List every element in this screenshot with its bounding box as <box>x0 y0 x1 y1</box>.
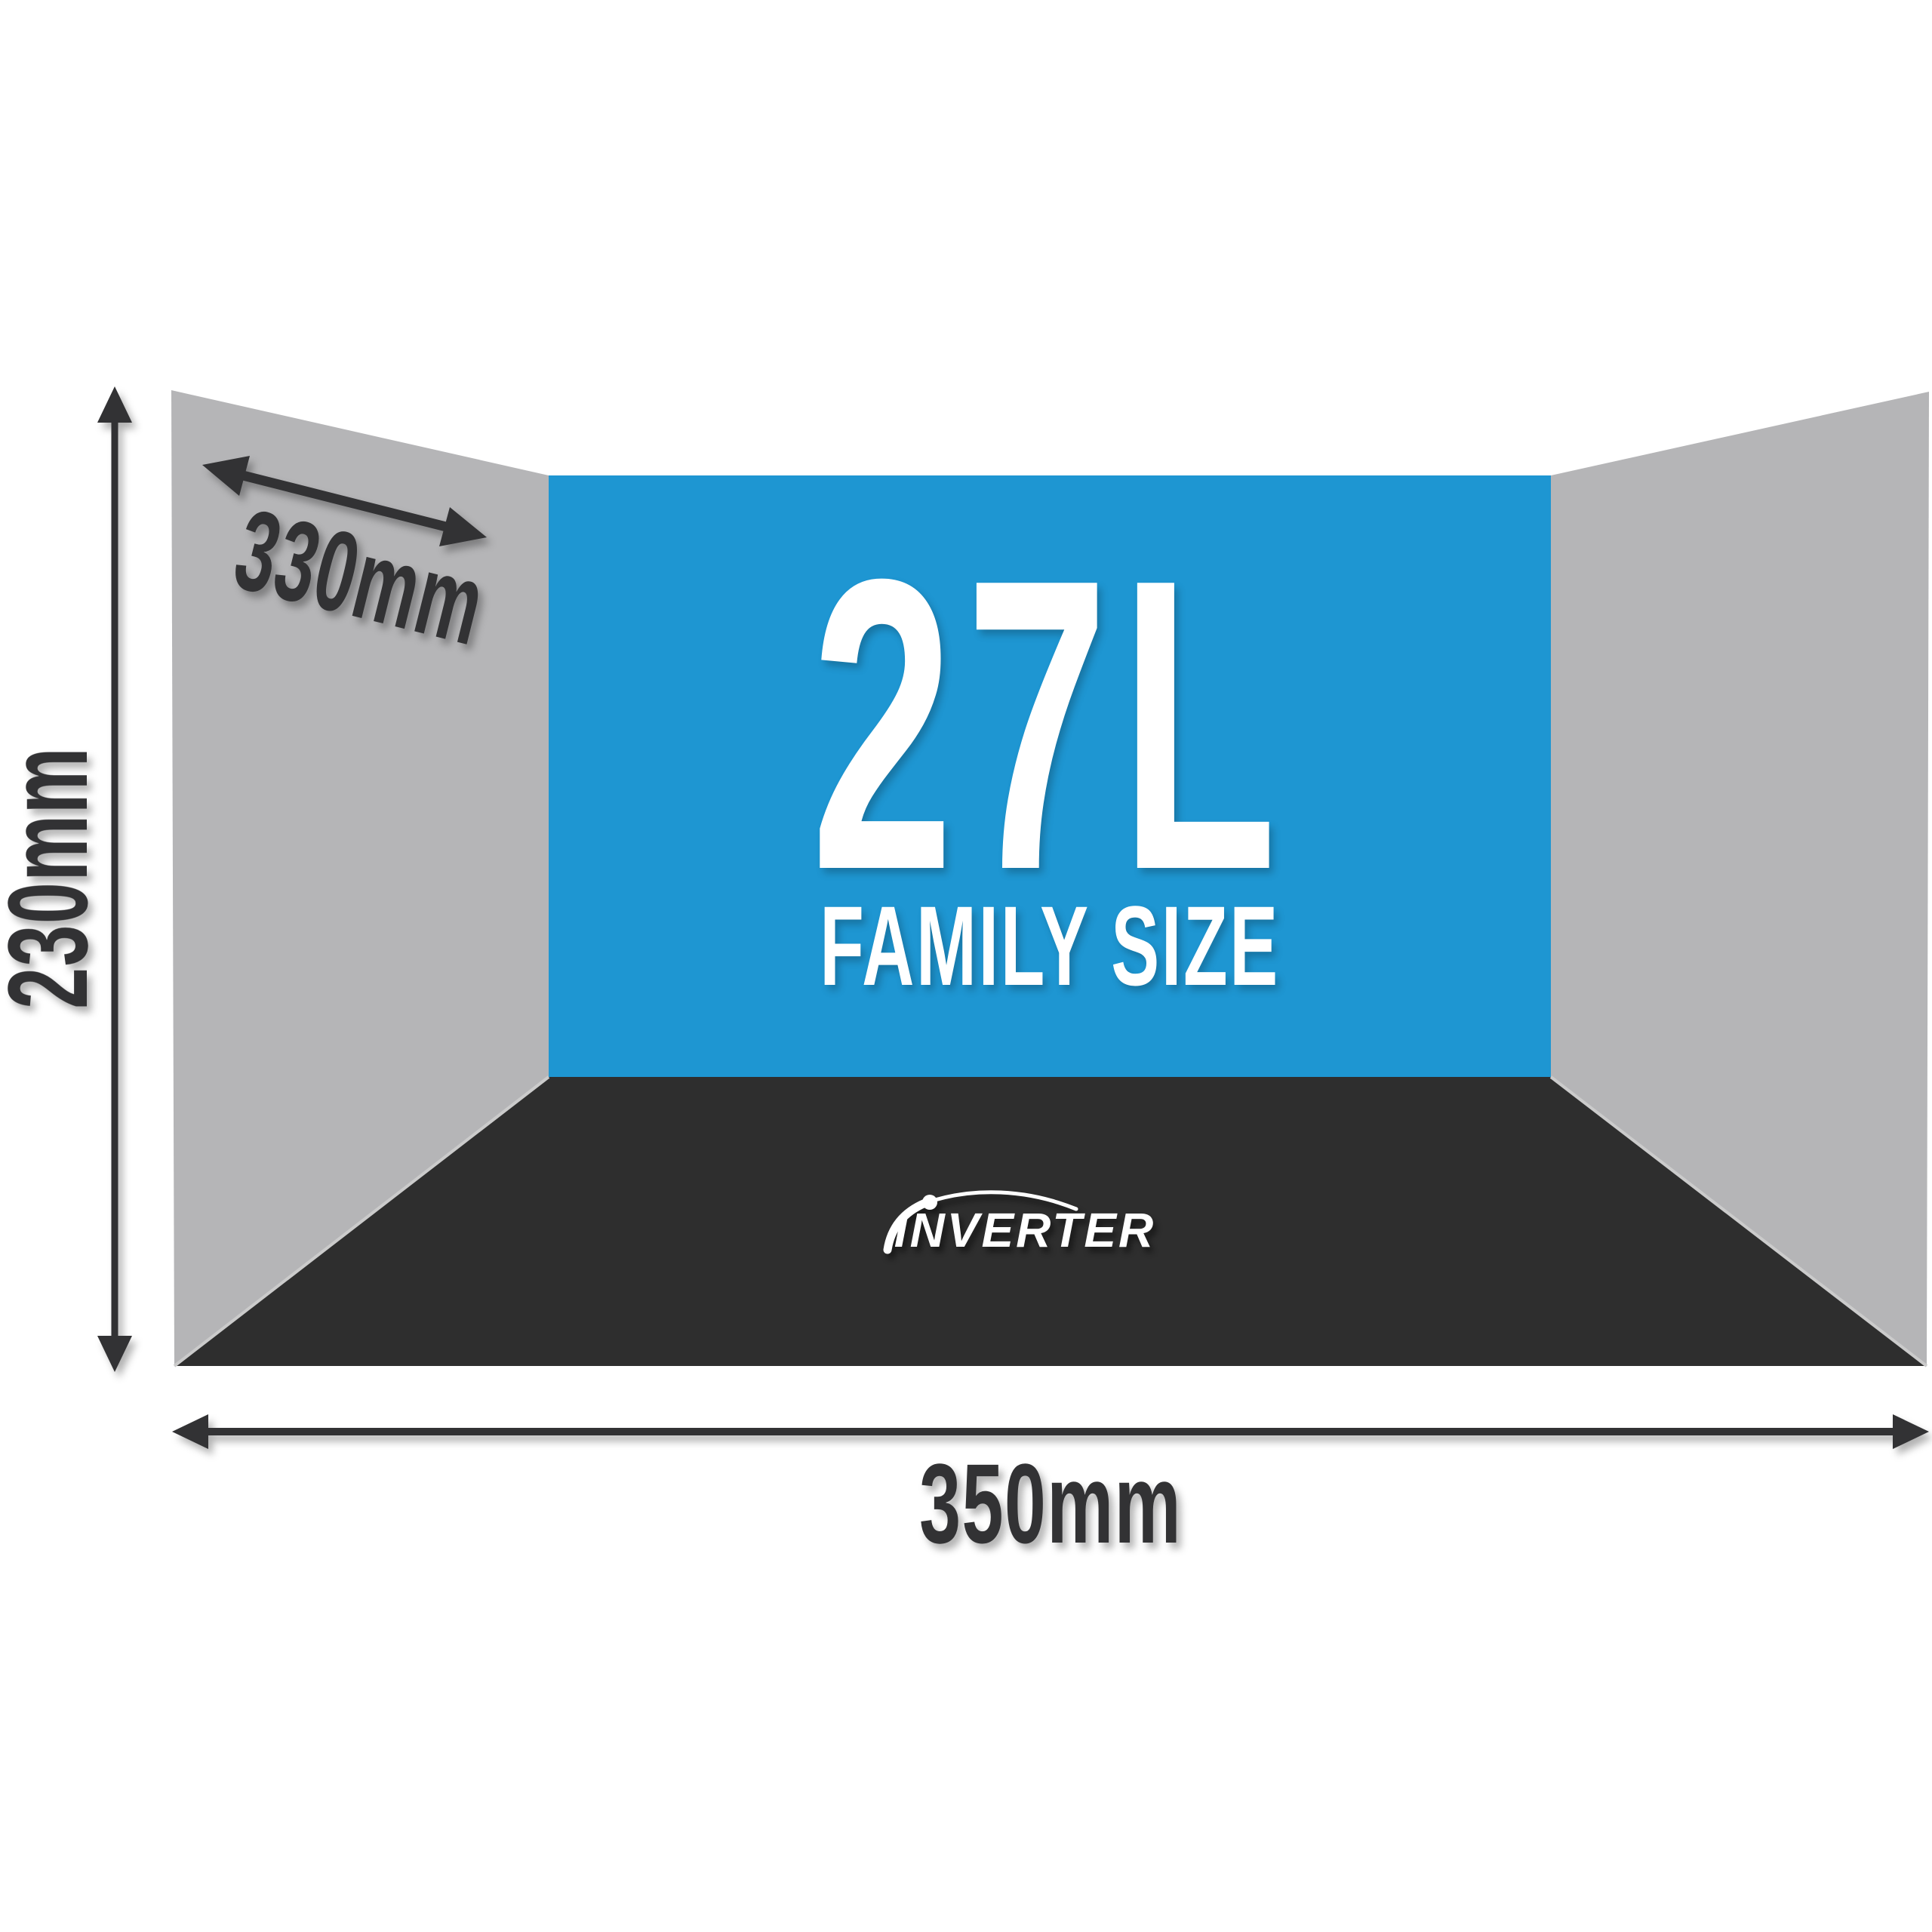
brand-logo-swoosh-dot <box>922 1195 937 1210</box>
capacity-diagram: 27L FAMILY SIZE INVERTER 230mm 330mm <box>0 0 1932 1932</box>
diagram-canvas: 27L FAMILY SIZE INVERTER 230mm 330mm <box>0 0 1932 1932</box>
back-wall-text-group: 27L FAMILY SIZE <box>811 494 1288 1010</box>
brand-logo-text: INVERTER <box>894 1203 1155 1257</box>
capacity-size-label: FAMILY SIZE <box>820 882 1280 1009</box>
height-dimension-label: 230mm <box>0 746 111 1009</box>
width-dimension-label: 350mm <box>919 1440 1182 1567</box>
